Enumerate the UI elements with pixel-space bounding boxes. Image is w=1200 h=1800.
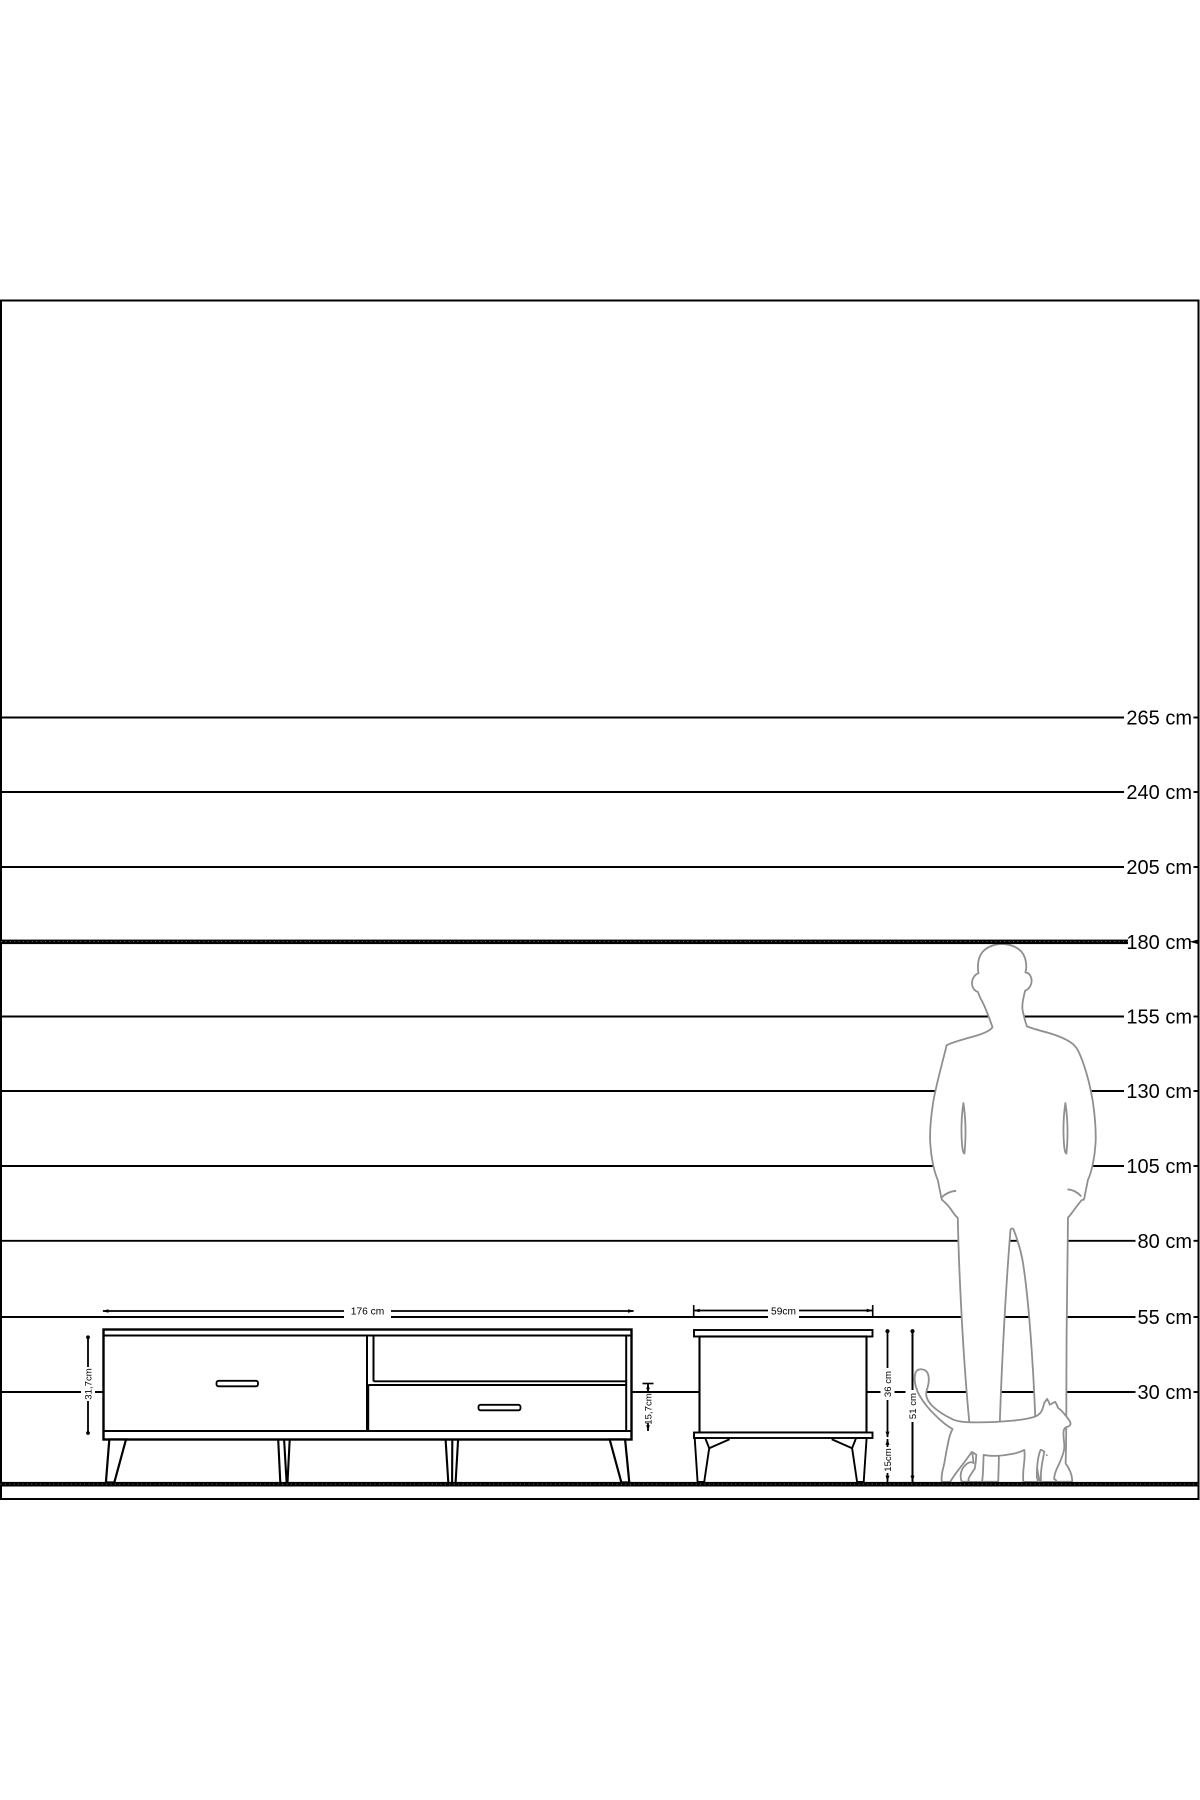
svg-text:15,7cm: 15,7cm [644,1393,655,1424]
svg-text:130 cm: 130 cm [1126,1081,1192,1103]
svg-text:265 cm: 265 cm [1126,708,1192,730]
svg-text:155 cm: 155 cm [1126,1007,1192,1029]
svg-text:59cm: 59cm [771,1307,796,1318]
svg-text:51 cm: 51 cm [908,1393,919,1419]
svg-text:205 cm: 205 cm [1126,857,1192,879]
svg-text:240 cm: 240 cm [1126,782,1192,804]
svg-text:176 cm: 176 cm [351,1307,384,1318]
svg-text:55 cm: 55 cm [1138,1307,1192,1329]
svg-text:15cm: 15cm [883,1448,894,1471]
svg-text:180 cm: 180 cm [1126,932,1192,954]
svg-text:30 cm: 30 cm [1138,1382,1192,1404]
svg-text:36 cm: 36 cm [883,1371,894,1397]
svg-text:80 cm: 80 cm [1138,1231,1192,1253]
svg-text:105 cm: 105 cm [1126,1156,1192,1178]
svg-text:31,7cm: 31,7cm [84,1368,95,1399]
